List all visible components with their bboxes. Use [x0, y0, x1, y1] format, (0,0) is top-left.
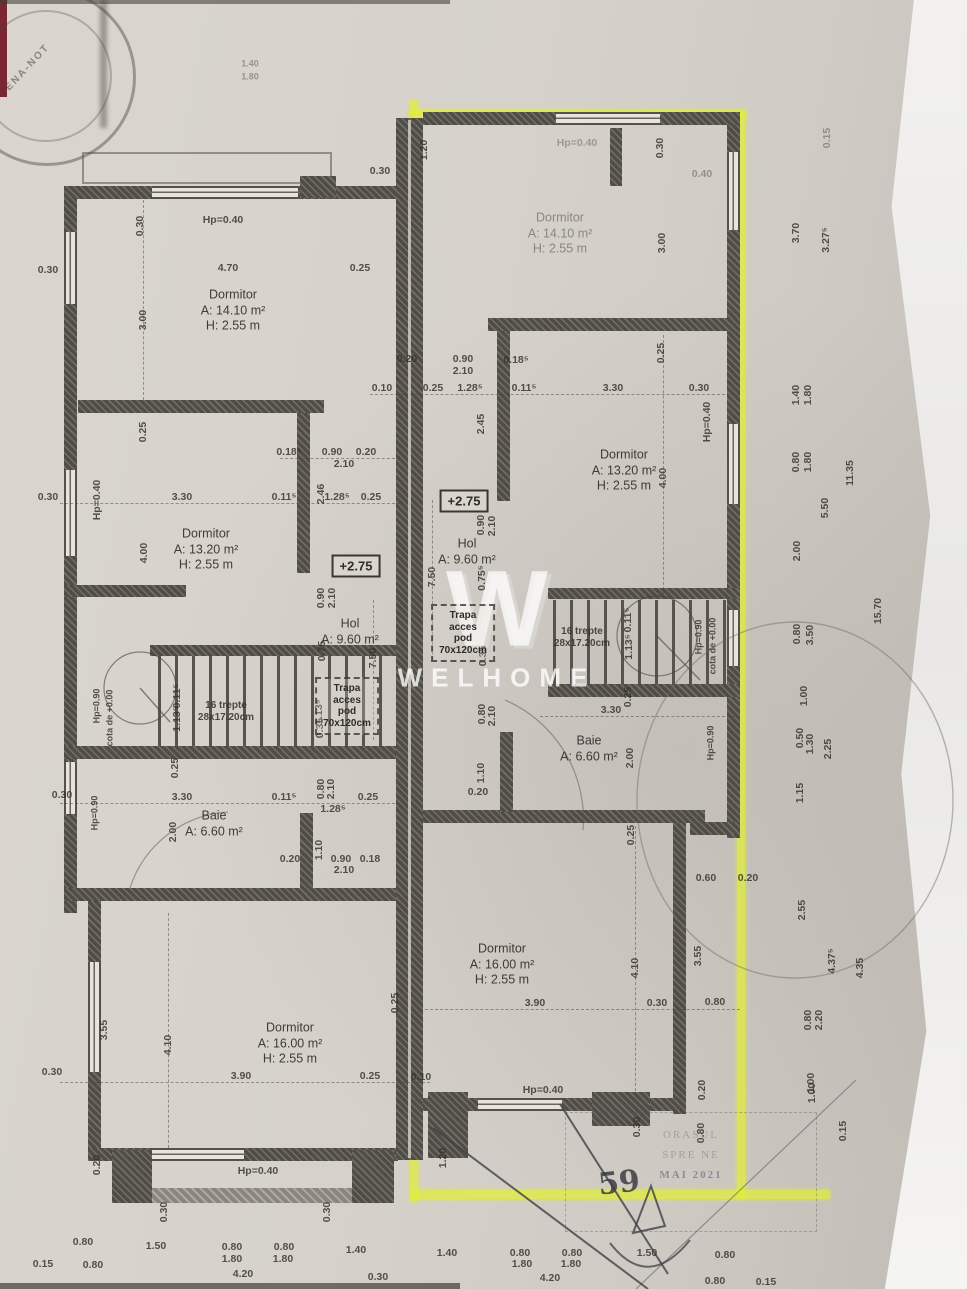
dim-label: 3.90 — [525, 998, 545, 1009]
dim-label: 1.80 — [273, 1254, 293, 1265]
room-label: BaieA: 6.60 m² — [560, 733, 618, 764]
dim-label: 1.10 — [476, 763, 487, 783]
dim-label: 0.25 — [423, 383, 443, 394]
dimension-line — [60, 803, 400, 804]
dim-label: 0.75⁵ — [477, 565, 488, 590]
dim-label: 0.25 — [170, 758, 181, 778]
dim-label: 0.40 — [692, 169, 712, 180]
wall — [300, 813, 313, 890]
dim-label: 0.25 — [358, 792, 378, 803]
dim-label: 0.30 — [159, 1202, 170, 1222]
dim-label: 0.11⁵ — [272, 492, 297, 503]
dim-label: 4.20 — [540, 1273, 560, 1284]
dim-label: 0.30 — [647, 998, 667, 1009]
dim-label: 0.60 — [696, 873, 716, 884]
dim-label: 0.30 — [135, 216, 146, 236]
window — [64, 470, 77, 556]
window — [88, 962, 101, 1072]
dim-label: Hp=0.90 — [91, 796, 100, 831]
dim-label: 2.45 — [476, 414, 487, 434]
elevation-mark: +2.75 — [440, 490, 489, 513]
room-label: DormitorA: 14.10 m²H: 2.55 m — [528, 211, 593, 258]
dim-label: 4.10 — [630, 958, 641, 978]
dim-label: 1.28⁵ — [457, 383, 482, 394]
dim-label: 0.11⁵ — [272, 792, 297, 803]
attic-hatch-label: Trapaaccespod70x120cm — [315, 677, 379, 735]
dim-label: 0.20 — [280, 854, 300, 865]
dim-label: 3.30 — [172, 492, 192, 503]
dim-label: 0.80 — [510, 1248, 530, 1259]
dim-label: 1.13⁵ — [172, 706, 183, 731]
window — [152, 1148, 244, 1161]
dim-label: 4.10 — [163, 1035, 174, 1055]
dim-label: 3.90 — [231, 1071, 251, 1082]
dim-label: 0.90 — [476, 515, 487, 535]
dim-label: 1.20 — [438, 1148, 449, 1168]
dim-label: 1.40 — [346, 1245, 366, 1256]
dim-label: 0.25 — [138, 422, 149, 442]
dim-label: 1.40 — [241, 60, 259, 69]
approval-stamp-line: SPRE NE — [566, 1150, 816, 1161]
dim-label: 0.15 — [33, 1259, 53, 1270]
dim-label: 0.90 — [322, 447, 342, 458]
dim-label: 3.50 — [805, 625, 816, 645]
dim-label: 0.11⁵ — [512, 383, 537, 394]
dim-label: 2.55 — [797, 900, 808, 920]
dim-label: 5.50 — [820, 498, 831, 518]
dim-label: 2.00 — [168, 822, 179, 842]
dim-label: 3.27⁵ — [821, 227, 832, 252]
dim-label: Hp=0.90 — [93, 689, 102, 724]
dim-label: 7.50 — [427, 567, 438, 587]
dimension-line — [60, 503, 400, 504]
dim-label: 0.30 — [42, 1067, 62, 1078]
wall — [64, 585, 186, 597]
wall — [64, 746, 398, 759]
dimension-line — [370, 394, 740, 395]
dim-label: 1.00 — [806, 1073, 817, 1093]
dim-label: 3.30 — [601, 705, 621, 716]
dim-label: 1.28⁵ — [320, 804, 345, 815]
dim-label: 7.50 — [368, 648, 379, 668]
dim-label: 0.25 — [350, 263, 370, 274]
dim-label: 0.25 — [626, 825, 637, 845]
dim-label: 3.55 — [693, 946, 704, 966]
dim-label: 0.20 — [397, 354, 417, 365]
room-label: HolA: 9.60 m² — [438, 536, 496, 567]
dim-label: 0.11⁵ — [623, 608, 634, 633]
dim-label: 1.10 — [314, 840, 325, 860]
dim-label: 4.70 — [218, 263, 238, 274]
balcony-parapet — [82, 152, 332, 184]
dim-label: 4.00 — [658, 468, 669, 488]
dim-label: 0.18⁵ — [503, 355, 528, 366]
dim-label: 2.00 — [625, 748, 636, 768]
dim-label: 0.20 — [356, 447, 376, 458]
dim-label: 0.18 — [360, 854, 380, 865]
window — [64, 232, 77, 304]
dim-label: 0.80 — [791, 452, 802, 472]
dim-label: 0.18⁵ — [276, 447, 301, 458]
stairs-label: 16 trepte28x17.20cm — [554, 626, 610, 650]
dim-label: 0.15 — [822, 128, 833, 148]
dim-label: Hp=0.90 — [707, 726, 716, 761]
dim-label: Hp=0.40 — [203, 215, 244, 226]
room-label: DormitorA: 16.00 m²H: 2.55 m — [470, 942, 535, 989]
dim-label: 2.20 — [814, 1010, 825, 1030]
dim-label: 1.80 — [803, 452, 814, 472]
dim-label: 1.28⁵ — [324, 492, 349, 503]
dim-label: Hp=0.40 — [523, 1085, 564, 1096]
window — [727, 424, 740, 504]
porch-post — [112, 1150, 152, 1203]
dim-label: 0.25 — [390, 993, 401, 1013]
window — [727, 152, 740, 230]
window — [556, 112, 660, 125]
room-label: DormitorA: 13.20 m²H: 2.55 m — [174, 527, 239, 574]
dim-label: 0.30 — [368, 1272, 388, 1283]
dim-label: 0.25 — [360, 1071, 380, 1082]
dim-label: 0.90 — [316, 588, 327, 608]
window — [152, 186, 298, 199]
dim-label: 15.70 — [873, 598, 884, 624]
dim-label: 1.80 — [561, 1259, 581, 1270]
wall — [610, 128, 622, 186]
dim-label: 0.30 — [38, 265, 58, 276]
dim-label: 1.80 — [512, 1259, 532, 1270]
dim-label: 4.00 — [139, 543, 150, 563]
wall — [500, 732, 513, 812]
wall — [297, 413, 310, 573]
dim-label: 0.80 — [222, 1242, 242, 1253]
dim-label: 1.40 — [437, 1248, 457, 1259]
dim-label: 0.25 — [656, 343, 667, 363]
elevation-mark: +2.75 — [332, 555, 381, 578]
dim-label: 2.10 — [327, 588, 338, 608]
dim-label: 1.00 — [799, 686, 810, 706]
room-label: DormitorA: 14.10 m²H: 2.55 m — [201, 288, 266, 335]
wall — [690, 822, 740, 835]
room-label: BaieA: 6.60 m² — [185, 808, 243, 839]
dim-label: 2.10 — [326, 779, 337, 799]
dim-label: 4.35 — [855, 958, 866, 978]
dimension-line — [420, 1009, 740, 1010]
dim-label: Hp=0.90 — [695, 620, 704, 655]
dim-label: 3.00 — [138, 310, 149, 330]
approval-stamp-line: ORASUL — [566, 1130, 816, 1141]
dim-label: 1.13⁵ — [624, 634, 635, 659]
dim-label: 11.35 — [845, 460, 856, 486]
dim-label: 1.30 — [805, 734, 816, 754]
dim-label: 0.80 — [696, 1123, 707, 1143]
dim-label: 0.80 — [705, 1276, 725, 1287]
room-label: DormitorA: 13.20 m²H: 2.55 m — [592, 448, 657, 495]
dim-label: 2.10 — [487, 516, 498, 536]
dim-label: 0.20 — [697, 1080, 708, 1100]
dim-label: 0.30 — [322, 1202, 333, 1222]
wall — [423, 810, 705, 823]
dim-label: Hp=0.40 — [557, 138, 598, 149]
dim-label: 1.15 — [795, 783, 806, 803]
dim-label: 2.10 — [453, 366, 473, 377]
wall — [548, 684, 740, 697]
dim-label: 0.80 — [803, 1010, 814, 1030]
dim-label: 0.30 — [655, 138, 666, 158]
dim-label: 0.30 — [370, 166, 390, 177]
dim-label: 0.90 — [331, 854, 351, 865]
dim-label: 0.30 — [689, 383, 709, 394]
dim-label: 0.80 — [274, 1242, 294, 1253]
attic-hatch-label: Trapaaccespod70x120cm — [431, 604, 495, 662]
room-label: DormitorA: 16.00 m²H: 2.55 m — [258, 1021, 323, 1068]
stairs-label: 16 trepte28x17.20cm — [198, 700, 254, 724]
window — [478, 1098, 562, 1111]
dim-label: 4.37⁵ — [827, 948, 838, 973]
dim-label: 1.40 — [791, 385, 802, 405]
scanned-floor-plan: ENA-NOT — [0, 0, 967, 1289]
dim-label: 0.11⁵ — [172, 684, 183, 709]
dim-label: 1.80 — [803, 385, 814, 405]
dim-label: 0.80 — [715, 1250, 735, 1261]
dim-label: 0.30 — [52, 790, 72, 801]
dim-label: cota de +0.00 — [709, 618, 718, 675]
dim-label: 0.25 — [361, 492, 381, 503]
dim-label: Hp=0.40 — [92, 480, 103, 521]
dim-label: Hp=0.40 — [238, 1166, 279, 1177]
handwritten-number: 59 — [596, 1163, 641, 1202]
dim-label: 1.20 — [419, 140, 430, 160]
dimension-line — [168, 913, 169, 1148]
dim-label: 0.90 — [453, 354, 473, 365]
dim-label: 0.15 — [756, 1277, 776, 1288]
dim-label: 0.80 — [792, 624, 803, 644]
wall — [78, 400, 324, 413]
dim-label: 3.00 — [657, 233, 668, 253]
dimension-line — [663, 335, 664, 595]
dimension-line — [540, 716, 740, 717]
dim-label: 1.80 — [241, 73, 259, 82]
dim-label: 1.80 — [222, 1254, 242, 1265]
dim-label: 1.50 — [637, 1248, 657, 1259]
dim-label: cota de +0.00 — [106, 690, 115, 747]
dim-label: 2.25 — [823, 739, 834, 759]
dim-label: 1.50 — [146, 1241, 166, 1252]
dim-label: 0.15 — [838, 1121, 849, 1141]
dim-label: 0.80 — [705, 997, 725, 1008]
dim-label: 0.80 — [83, 1260, 103, 1271]
dim-label: 0.25 — [623, 687, 634, 707]
wall — [64, 888, 398, 901]
dimension-line — [60, 1082, 430, 1083]
dim-label: 0.20 — [738, 873, 758, 884]
dim-label: 3.30 — [603, 383, 623, 394]
dim-label: 0.20 — [468, 787, 488, 798]
dim-label: 0.20 — [92, 1155, 103, 1175]
porch-post — [352, 1150, 394, 1203]
dim-label: 0.10 — [372, 383, 392, 394]
wall — [673, 822, 686, 1114]
dim-label: Hp=0.40 — [702, 402, 713, 443]
dim-label: 2.10 — [334, 459, 354, 470]
dim-label: 3.70 — [791, 223, 802, 243]
party-wall-joint — [408, 120, 411, 1158]
dim-label: 2.10 — [487, 706, 498, 726]
dim-label: 0.30 — [38, 492, 58, 503]
dim-label: 3.55 — [99, 1020, 110, 1040]
dim-label: 0.30 — [632, 1117, 643, 1137]
dim-label: 0.80 — [73, 1237, 93, 1248]
dim-label: 0.80 — [562, 1248, 582, 1259]
dim-label: 2.10 — [334, 865, 354, 876]
dim-label: 2.00 — [792, 541, 803, 561]
wall — [548, 588, 740, 599]
room-label: HolA: 9.60 m² — [321, 616, 379, 647]
wall — [488, 318, 740, 331]
bottom-edge-shadow — [0, 1283, 460, 1289]
dim-label: 3.30 — [172, 792, 192, 803]
wall-post — [300, 176, 336, 198]
dim-label: 4.20 — [233, 1269, 253, 1280]
dim-label: 0.10 — [411, 1072, 431, 1083]
